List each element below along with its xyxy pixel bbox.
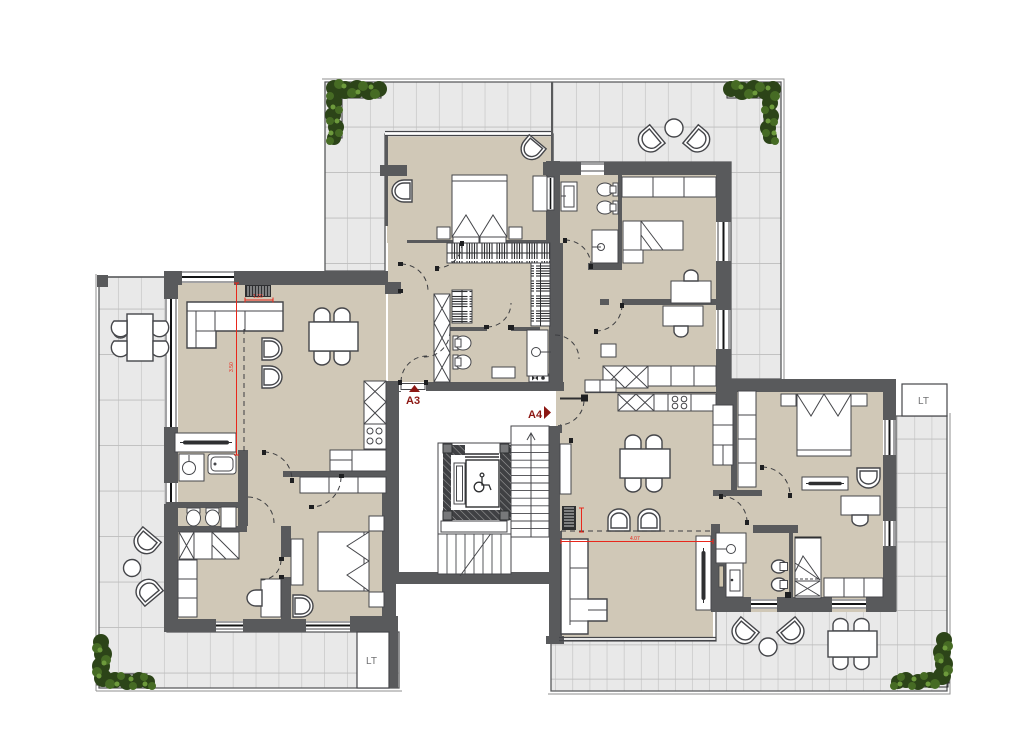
svg-text:LT: LT — [366, 656, 377, 667]
svg-text:LT: LT — [918, 396, 929, 407]
svg-text:A4: A4 — [528, 409, 543, 421]
svg-text:4.07: 4.07 — [630, 536, 640, 542]
svg-text:3.50: 3.50 — [229, 362, 235, 372]
svg-text:1.20: 1.20 — [253, 294, 263, 300]
svg-text:A3: A3 — [406, 395, 420, 407]
